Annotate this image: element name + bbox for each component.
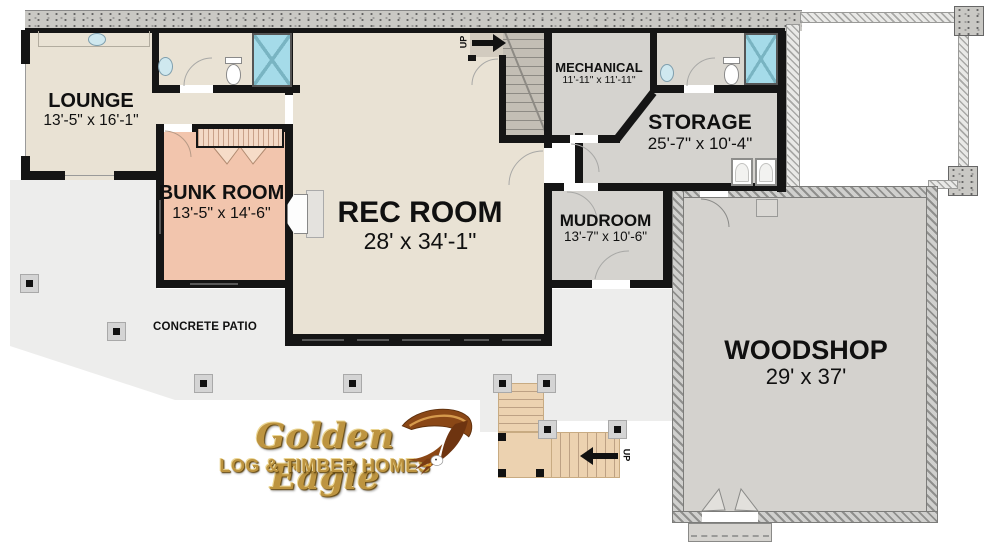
door-opening bbox=[564, 183, 598, 191]
woodshop-label: WOODSHOP 29' x 37' bbox=[700, 336, 912, 389]
up-arrow-top-shaft bbox=[472, 40, 494, 46]
water-heater bbox=[756, 199, 778, 217]
storage-label: STORAGE 25'-7" x 10'-4" bbox=[600, 112, 800, 153]
toilet-1-tank bbox=[225, 57, 242, 64]
lounge-label: LOUNGE 13'-5" x 16'-1" bbox=[25, 91, 157, 129]
patio-label: CONCRETE PATIO bbox=[144, 321, 266, 333]
woodshop-double-doors bbox=[701, 487, 759, 512]
wall-segment bbox=[499, 135, 547, 143]
toilet-2-tank bbox=[723, 57, 740, 64]
up-arrow-bottom-shaft bbox=[592, 453, 618, 459]
sink-1 bbox=[158, 57, 173, 76]
door-swing bbox=[686, 57, 716, 87]
shower-1 bbox=[252, 33, 292, 87]
door-swing bbox=[471, 58, 499, 86]
patio-post bbox=[343, 374, 362, 393]
door-opening bbox=[592, 280, 630, 288]
window bbox=[357, 336, 389, 344]
company-logo: Golden Eagle LOG & TIMBER HOMES bbox=[195, 412, 475, 492]
up-label-top: UP bbox=[458, 36, 468, 49]
toilet-1 bbox=[226, 64, 241, 85]
deck-wall-top bbox=[800, 12, 958, 23]
door-swing bbox=[570, 143, 600, 173]
door-opening bbox=[544, 148, 552, 186]
window bbox=[302, 336, 344, 344]
sink-2 bbox=[660, 64, 674, 82]
woodshop-wall-right bbox=[926, 186, 938, 523]
deck-wall-right bbox=[958, 28, 969, 173]
appliance-washer bbox=[731, 158, 753, 186]
door-opening bbox=[570, 135, 598, 143]
patio-post bbox=[20, 274, 39, 293]
window bbox=[464, 336, 489, 344]
window bbox=[502, 336, 541, 344]
deck-post-small bbox=[536, 469, 544, 477]
rec-label: REC ROOM 28' x 34'-1" bbox=[315, 197, 525, 254]
up-label-bottom: UP bbox=[621, 449, 631, 462]
closet-rod bbox=[196, 127, 284, 148]
mudroom-label: MUDROOM 13'-7" x 10'-6" bbox=[548, 212, 663, 245]
bar-sink bbox=[88, 33, 106, 46]
woodshop-double-door-opening bbox=[702, 512, 758, 522]
patio-door-opening bbox=[65, 171, 114, 180]
deck-post-small bbox=[498, 469, 506, 477]
patio-post bbox=[107, 322, 126, 341]
deck-post bbox=[538, 420, 557, 439]
wall-segment bbox=[114, 171, 160, 180]
floor-plan: UP UP LOUNGE 13'-5" x 16'-1" BUNK ROOM 1… bbox=[0, 0, 1000, 558]
storage-exterior-band bbox=[786, 24, 800, 192]
wall-segment bbox=[499, 55, 506, 143]
door-swing bbox=[508, 150, 544, 186]
woodshop-stoop bbox=[688, 523, 772, 542]
toilet-2 bbox=[724, 64, 739, 85]
door-swing bbox=[700, 198, 730, 228]
deck-post-corner-top bbox=[954, 6, 984, 36]
window bbox=[190, 280, 238, 288]
door-swing bbox=[183, 57, 213, 87]
closet-bifold-doors bbox=[213, 147, 267, 166]
woodshop-wall-left bbox=[672, 186, 684, 523]
deck-post bbox=[493, 374, 512, 393]
appliance-dryer bbox=[755, 158, 777, 186]
up-arrow-top-head bbox=[493, 34, 506, 52]
wall-segment bbox=[663, 183, 672, 288]
door-opening bbox=[285, 95, 293, 125]
bunk-label: BUNK ROOM 13'-5" x 14'-6" bbox=[158, 183, 285, 222]
wall-segment bbox=[21, 171, 65, 180]
logo-eagle-icon bbox=[395, 404, 477, 486]
patio-post bbox=[194, 374, 213, 393]
mechanical-label: MECHANICAL 11'-11" x 11'-11" bbox=[542, 61, 656, 86]
deck-post bbox=[608, 420, 627, 439]
deck-post-small bbox=[498, 433, 506, 441]
door-swing bbox=[594, 250, 630, 280]
door-swing bbox=[164, 130, 192, 158]
shower-2 bbox=[744, 33, 778, 85]
window bbox=[402, 336, 450, 344]
stoop-dashed-line bbox=[691, 535, 769, 537]
deck-post bbox=[537, 374, 556, 393]
wall-segment bbox=[650, 85, 785, 93]
wall-segment bbox=[21, 30, 30, 64]
